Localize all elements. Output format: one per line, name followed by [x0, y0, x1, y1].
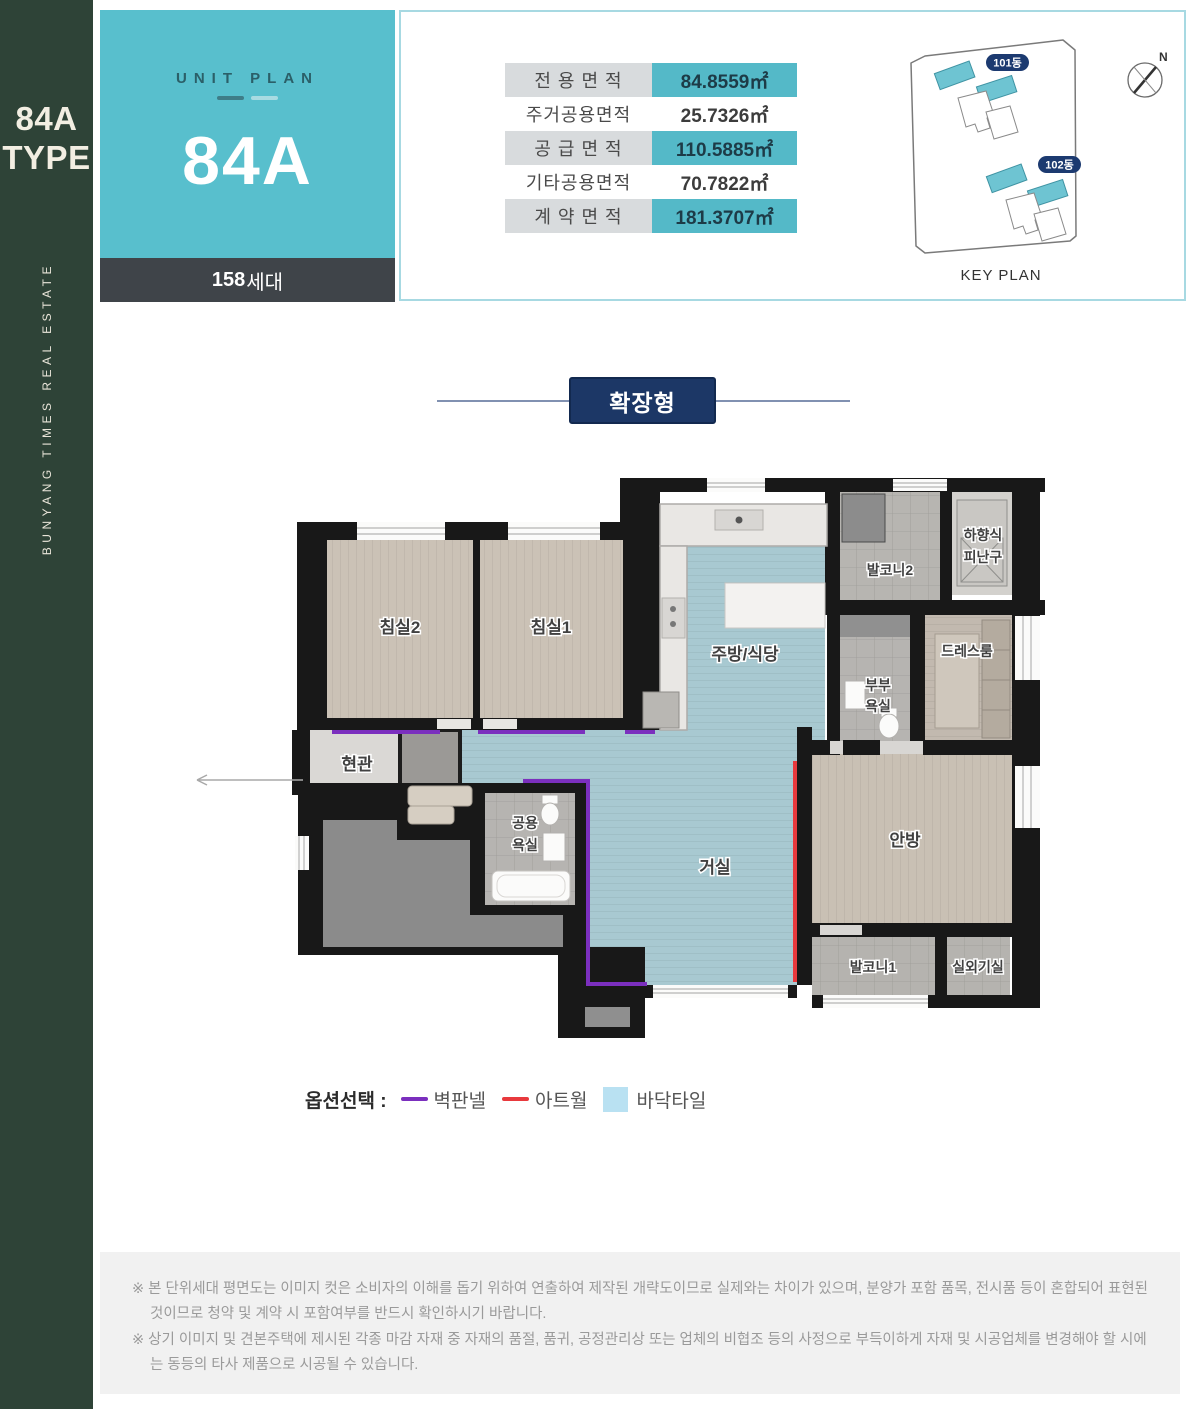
- disclaimer-line2: ※ 상기 이미지 및 견본주택에 제시된 각종 마감 자재 중 자재의 품절, …: [132, 1328, 1150, 1377]
- wall-panel-swatch: [401, 1097, 428, 1101]
- units-suffix: 세대: [246, 266, 283, 295]
- table-row: 전 용 면 적 84.8559㎡: [505, 63, 797, 97]
- legend-item-art-wall: 아트월: [535, 1086, 587, 1113]
- floor-tile-swatch: [603, 1087, 628, 1112]
- legend-item-wall-panel: 벽판넬: [434, 1086, 486, 1113]
- area-value: 70.7822㎡: [652, 165, 797, 199]
- table-row: 주거공용면적 25.7326㎡: [505, 97, 797, 131]
- area-label: 공 급 면 적: [505, 131, 652, 165]
- building-pill-label: 101동: [993, 57, 1021, 70]
- room-label-evac1: 하향식: [964, 527, 1003, 543]
- area-label: 계 약 면 적: [505, 199, 652, 233]
- room-label-bedroom2: 침실2: [380, 617, 421, 637]
- room-label-living: 거실: [699, 858, 730, 877]
- room-label-bedroom1: 침실1: [531, 617, 572, 637]
- room-label-kitchen: 주방/식당: [711, 645, 779, 664]
- area-value: 84.8559㎡: [652, 63, 797, 97]
- sidebar-type-line2: TYPE: [0, 139, 93, 178]
- room-label-ac-room: 실외기실: [952, 959, 1004, 975]
- compass-icon: N: [1128, 50, 1168, 97]
- area-value: 110.5885㎡: [652, 131, 797, 165]
- room-label-evac2: 피난구: [964, 549, 1003, 565]
- sidebar: 84A TYPE BUNYANG TIMES REAL ESTATE: [0, 0, 93, 1409]
- area-table: 전 용 면 적 84.8559㎡ 주거공용면적 25.7326㎡ 공 급 면 적…: [505, 63, 797, 233]
- building-pill-label: 102동: [1045, 159, 1073, 172]
- room-label-cbath2: 욕실: [512, 837, 538, 853]
- units-count: 158: [212, 269, 245, 292]
- room-label-master-bedroom: 안방: [889, 831, 921, 850]
- sidebar-vertical-text: BUNYANG TIMES REAL ESTATE: [0, 262, 93, 572]
- sidebar-type-line1: 84A: [0, 100, 93, 139]
- room-label-mbath1: 부부: [865, 677, 891, 693]
- table-row: 기타공용면적 70.7822㎡: [505, 165, 797, 199]
- legend-title: 옵션선택 :: [305, 1086, 387, 1113]
- room-label-dressroom: 드레스룸: [941, 643, 993, 659]
- area-value: 25.7326㎡: [652, 97, 797, 131]
- unit-plan-eyebrow: UNIT PLAN: [100, 70, 395, 87]
- dash-light: [251, 96, 278, 100]
- key-plan: 101동 102동 N KEY PLAN: [898, 28, 1184, 290]
- units-count-bar: 158 세대: [100, 258, 395, 302]
- area-label: 주거공용면적: [505, 97, 652, 131]
- table-row: 계 약 면 적 181.3707㎡: [505, 199, 797, 233]
- area-value: 181.3707㎡: [652, 199, 797, 233]
- dash-dark: [217, 96, 244, 100]
- art-wall-swatch: [502, 1097, 529, 1101]
- room-label-entrance: 현관: [341, 755, 373, 774]
- unit-plan-dashes: [100, 96, 395, 100]
- room-label-mbath2: 욕실: [865, 698, 891, 714]
- room-label-balcony1: 발코니1: [850, 959, 897, 975]
- option-legend: 옵션선택 : 벽판넬 아트월 바닥타일: [305, 1083, 722, 1115]
- expand-type-badge: 확장형: [569, 377, 716, 424]
- table-row: 공 급 면 적 110.5885㎡: [505, 131, 797, 165]
- legend-item-floor-tile: 바닥타일: [636, 1086, 706, 1113]
- disclaimer-line1: ※ 본 단위세대 평면도는 이미지 컷은 소비자의 이해를 돕기 위하여 연출하…: [132, 1277, 1150, 1326]
- brochure-page: 84A TYPE BUNYANG TIMES REAL ESTATE UNIT …: [0, 0, 1200, 1409]
- area-label: 기타공용면적: [505, 165, 652, 199]
- room-label-balcony2: 발코니2: [867, 562, 914, 578]
- svg-text:N: N: [1159, 50, 1168, 64]
- floor-plan: 침실2 침실1 주방/식당 발코니2 하향식 피난구 부부 욕실 드레스룸 현관…: [185, 478, 1045, 1048]
- unit-plan-box: UNIT PLAN 84A: [100, 10, 395, 258]
- room-label-cbath1: 공용: [512, 815, 538, 831]
- area-label: 전 용 면 적: [505, 63, 652, 97]
- key-plan-caption: KEY PLAN: [960, 267, 1041, 284]
- disclaimer-box: ※ 본 단위세대 평면도는 이미지 컷은 소비자의 이해를 돕기 위하여 연출하…: [100, 1252, 1180, 1394]
- sidebar-type-label: 84A TYPE: [0, 100, 93, 178]
- unit-type-code: 84A: [100, 122, 395, 200]
